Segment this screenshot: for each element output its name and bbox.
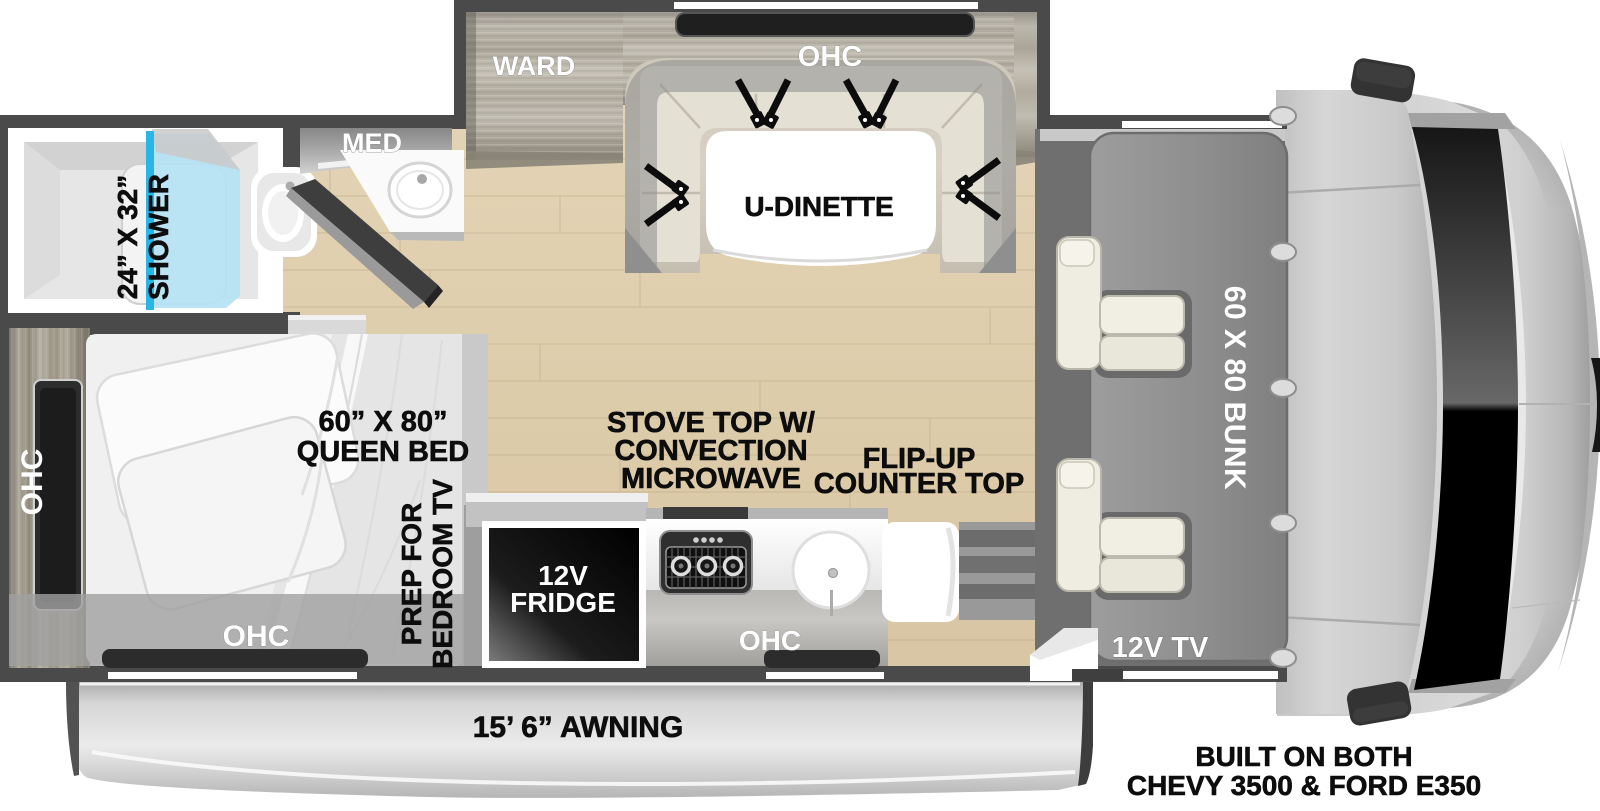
svg-text:BUILT ON BOTH: BUILT ON BOTH: [1195, 741, 1412, 772]
svg-text:15’ 6” AWNING: 15’ 6” AWNING: [473, 711, 684, 744]
svg-text:MICROWAVE: MICROWAVE: [621, 463, 801, 495]
svg-text:BEDROOM TV: BEDROOM TV: [427, 479, 458, 669]
svg-text:FRIDGE: FRIDGE: [510, 587, 616, 618]
svg-text:SHOWER: SHOWER: [143, 174, 174, 300]
svg-text:60” X 80”: 60” X 80”: [319, 406, 448, 438]
svg-text:CHEVY 3500 & FORD E350: CHEVY 3500 & FORD E350: [1127, 770, 1481, 801]
svg-text:MED: MED: [342, 128, 402, 158]
svg-text:COUNTER TOP: COUNTER TOP: [814, 468, 1025, 500]
svg-text:OHC: OHC: [798, 41, 863, 73]
svg-text:24” X 32”: 24” X 32”: [112, 175, 143, 300]
svg-text:OHC: OHC: [16, 449, 49, 516]
svg-text:QUEEN BED: QUEEN BED: [297, 436, 469, 468]
svg-text:12V TV: 12V TV: [1112, 632, 1209, 664]
svg-text:60 X 80 BUNK: 60 X 80 BUNK: [1218, 286, 1251, 490]
svg-text:OHC: OHC: [739, 625, 801, 656]
svg-text:U-DINETTE: U-DINETTE: [744, 191, 893, 222]
svg-text:PREP FOR: PREP FOR: [396, 503, 427, 646]
svg-text:OHC: OHC: [223, 620, 290, 653]
svg-text:WARD: WARD: [493, 51, 576, 81]
